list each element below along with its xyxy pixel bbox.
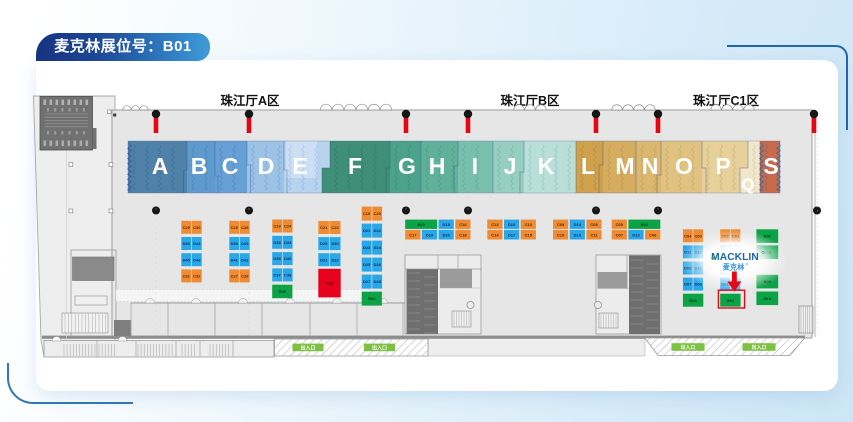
- svg-text:C11: C11: [590, 232, 598, 237]
- svg-text:D36: D36: [284, 256, 292, 261]
- svg-text:D42: D42: [241, 257, 249, 262]
- svg-text:D14: D14: [574, 222, 582, 227]
- svg-text:C21: C21: [320, 225, 328, 230]
- svg-text:D40: D40: [241, 241, 249, 246]
- svg-text:麦克林: 麦克林: [723, 263, 745, 272]
- svg-text:O: O: [675, 153, 693, 179]
- svg-text:C31: C31: [183, 274, 191, 279]
- svg-text:C08: C08: [590, 222, 598, 227]
- svg-text:B03: B03: [417, 222, 425, 227]
- svg-text:C19: C19: [363, 211, 371, 216]
- svg-text:B05: B05: [279, 289, 287, 294]
- svg-text:J: J: [504, 153, 517, 179]
- svg-text:B06: B06: [689, 298, 697, 303]
- svg-text:D30: D30: [331, 241, 339, 246]
- svg-text:B01: B01: [727, 298, 735, 303]
- svg-text:D43: D43: [183, 241, 191, 246]
- svg-text:Q: Q: [741, 175, 754, 194]
- svg-text:H: H: [429, 153, 446, 179]
- svg-text:B10: B10: [764, 296, 772, 301]
- svg-text:D15: D15: [574, 232, 582, 237]
- svg-text:D25: D25: [363, 262, 371, 267]
- svg-text:I: I: [472, 153, 478, 179]
- svg-text:C13: C13: [491, 222, 499, 227]
- svg-text:C10: C10: [557, 232, 565, 237]
- svg-text:C09: C09: [557, 222, 565, 227]
- svg-text:N: N: [642, 153, 659, 179]
- svg-text:D24: D24: [374, 245, 382, 250]
- svg-text:C07: C07: [616, 232, 624, 237]
- svg-text:D31: D31: [320, 257, 328, 262]
- svg-text:D29: D29: [320, 241, 328, 246]
- svg-text:B: B: [191, 153, 208, 179]
- svg-text:E: E: [292, 153, 307, 179]
- svg-text:C32: C32: [193, 274, 201, 279]
- svg-text:D46: D46: [193, 257, 201, 262]
- svg-text:P: P: [715, 153, 730, 179]
- svg-text:D45: D45: [183, 257, 191, 262]
- svg-text:C38: C38: [284, 273, 292, 278]
- svg-text:C18: C18: [459, 232, 467, 237]
- svg-text:出入口: 出入口: [751, 344, 766, 351]
- svg-text:C29: C29: [183, 225, 191, 230]
- svg-text:F: F: [348, 153, 362, 179]
- svg-text:D21: D21: [363, 228, 371, 233]
- svg-text:C: C: [222, 153, 239, 179]
- svg-text:M: M: [615, 153, 634, 179]
- svg-text:D35: D35: [273, 256, 281, 261]
- svg-text:出入口: 出入口: [300, 344, 315, 351]
- svg-text:D18: D18: [443, 222, 451, 227]
- svg-text:S: S: [763, 153, 778, 179]
- svg-text:C12: C12: [525, 222, 533, 227]
- svg-text:A01: A01: [326, 281, 334, 286]
- svg-text:D39: D39: [231, 241, 239, 246]
- svg-text:C20: C20: [374, 211, 382, 216]
- svg-text:C27: C27: [231, 274, 239, 279]
- svg-text:D32: D32: [331, 257, 339, 262]
- svg-text:A: A: [152, 153, 169, 179]
- svg-text:C37: C37: [273, 273, 281, 278]
- svg-text:D19: D19: [426, 232, 434, 237]
- svg-text:D20: D20: [443, 232, 451, 237]
- svg-text:C23: C23: [273, 224, 281, 229]
- svg-text:B02: B02: [641, 222, 649, 227]
- svg-text:D: D: [258, 153, 275, 179]
- svg-text:L: L: [581, 153, 595, 179]
- svg-text:C30: C30: [193, 225, 201, 230]
- svg-text:B04: B04: [368, 296, 376, 301]
- svg-text:D23: D23: [363, 245, 371, 250]
- svg-text:C14: C14: [491, 232, 499, 237]
- svg-text:C26: C26: [241, 225, 249, 230]
- svg-text:C22: C22: [331, 225, 339, 230]
- svg-text:出入口: 出入口: [680, 344, 695, 351]
- svg-text:D44: D44: [193, 241, 201, 246]
- svg-text:K: K: [538, 153, 555, 179]
- svg-text:C15: C15: [525, 232, 533, 237]
- svg-text:C05: C05: [616, 222, 624, 227]
- svg-text:C16: C16: [459, 222, 467, 227]
- svg-text:D33: D33: [273, 240, 281, 245]
- svg-text:C28: C28: [241, 274, 249, 279]
- svg-text:C04: C04: [684, 233, 692, 238]
- svg-text:D22: D22: [374, 228, 382, 233]
- svg-text:MACKLIN: MACKLIN: [711, 252, 759, 263]
- svg-text:D17: D17: [508, 232, 516, 237]
- svg-text:D34: D34: [284, 240, 292, 245]
- svg-text:D28: D28: [374, 279, 382, 284]
- svg-text:D27: D27: [363, 279, 371, 284]
- svg-text:出入口: 出入口: [372, 344, 387, 351]
- svg-text:D13: D13: [632, 232, 640, 237]
- svg-text:C25: C25: [231, 225, 239, 230]
- svg-text:D26: D26: [374, 262, 382, 267]
- svg-text:C24: C24: [284, 224, 292, 229]
- svg-text:C17: C17: [409, 232, 417, 237]
- svg-text:D41: D41: [231, 257, 239, 262]
- svg-text:G: G: [398, 153, 416, 179]
- svg-text:D16: D16: [508, 222, 516, 227]
- svg-text:D07: D07: [684, 282, 692, 287]
- svg-text:C06: C06: [649, 232, 657, 237]
